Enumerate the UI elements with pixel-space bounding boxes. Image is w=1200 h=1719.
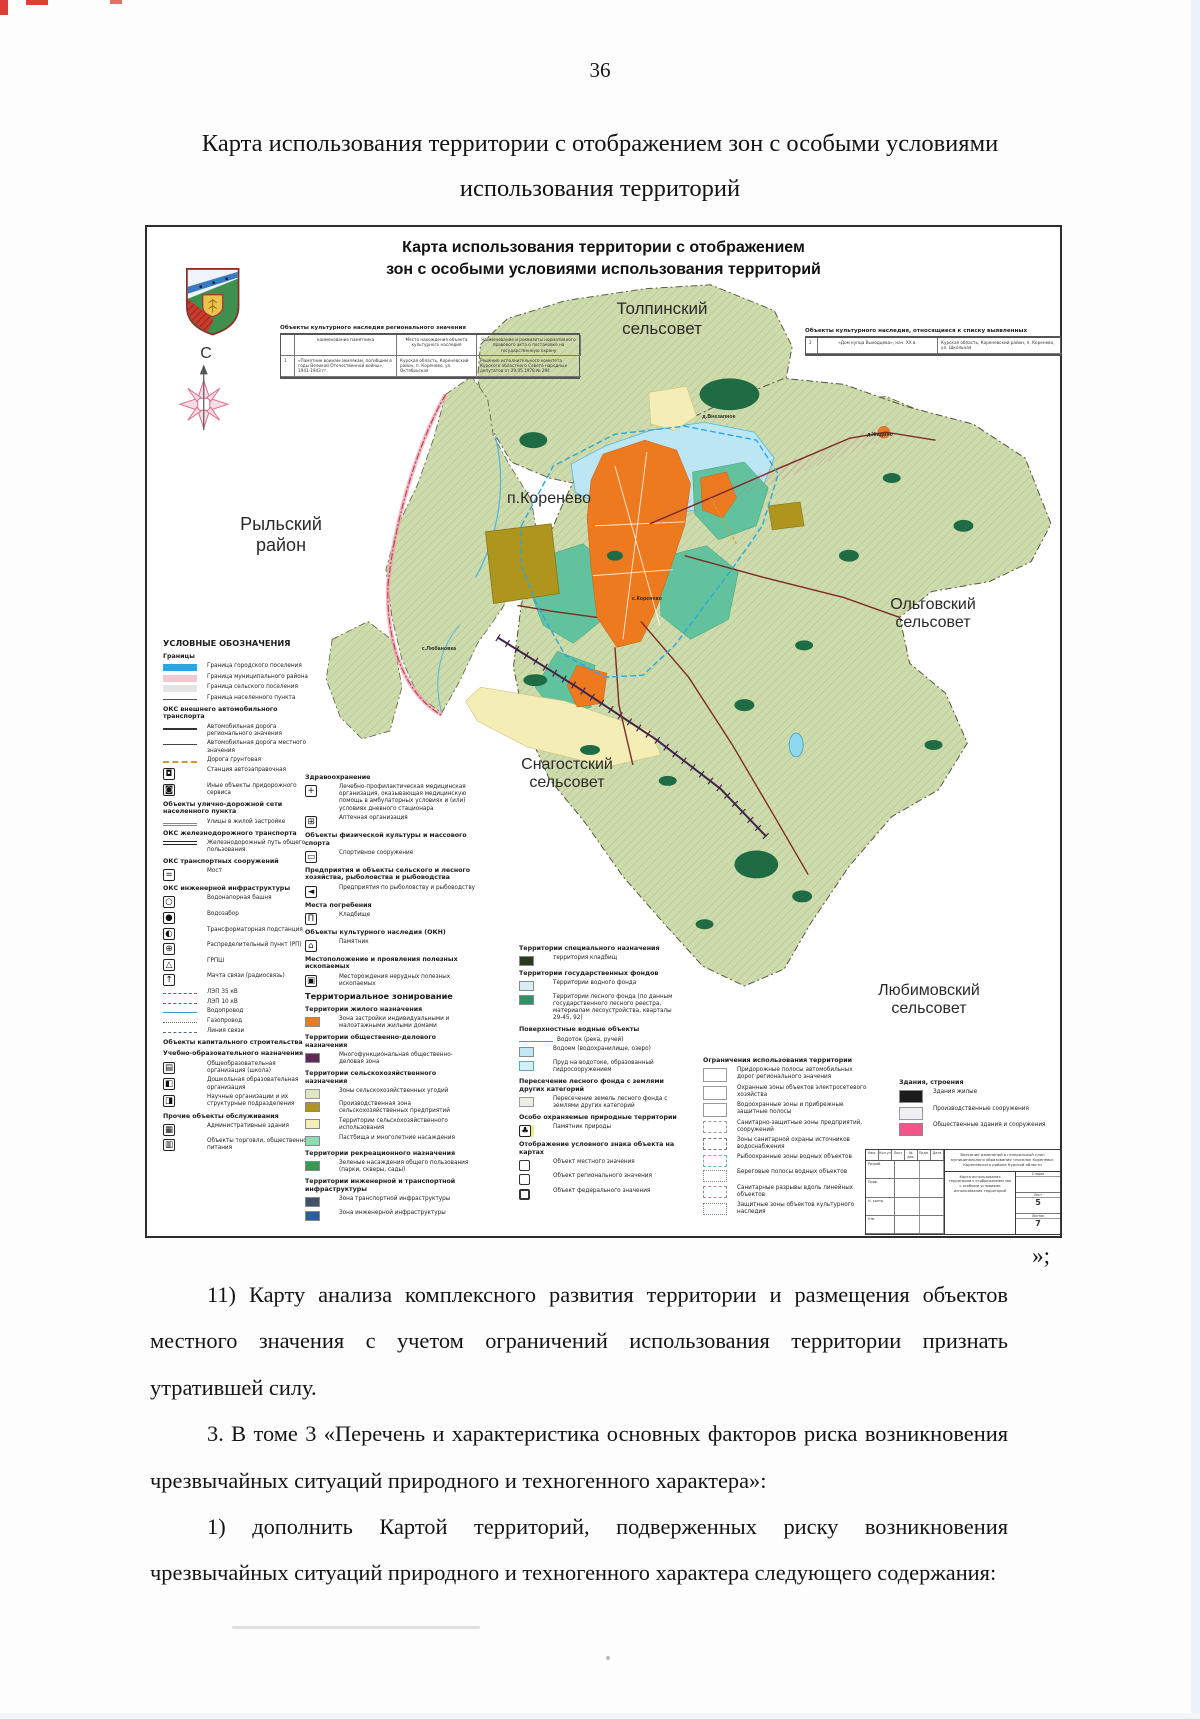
legend-item: ▭ Спортивное сооружение [305, 850, 477, 863]
legend-swatch: ◧ [163, 1078, 175, 1090]
legend-swatch [703, 1103, 727, 1117]
legend-item-label: Зона транспортной инфраструктуры [339, 1196, 450, 1203]
table-cell: Курская область, Кореневский район, п. К… [397, 356, 477, 377]
legend-item-label: Памятник природы [553, 1124, 611, 1131]
legend-item: Объекты улично-дорожной сети населенного… [163, 801, 315, 816]
legend-swatch [899, 1123, 923, 1136]
legend-item: Пастбища и многолетние насаждения [305, 1135, 477, 1146]
scan-edge-artifact [0, 1713, 1200, 1719]
legend-item-label: Дорога грунтовая [207, 757, 261, 764]
legend-item: Предприятия и объекты сельского и лесног… [305, 867, 477, 882]
legend-item-label: Рыбоохранные зоны водных объектов [737, 1154, 852, 1161]
legend-item-label: Пруд на водотоке, образованный гидросоор… [553, 1060, 681, 1074]
legend-item: Придорожные полосы автомобильных дорог р… [703, 1067, 871, 1082]
legend-item: ◧ Дошкольная образовательная организация [163, 1077, 315, 1091]
legend-item-label: ГРПШ [207, 958, 224, 965]
legend-item-label: Зона застройки индивидуальными и малоэта… [339, 1016, 477, 1030]
legend-item-label: Водопровод [207, 1008, 243, 1015]
legend-item-label: Территории сельскохозяйственного использ… [339, 1118, 477, 1132]
legend-item-label: Мост [207, 868, 222, 875]
legend-item-label: Береговые полосы водных объектов [737, 1169, 847, 1176]
legend-item: Защитные зоны объектов культурного насле… [703, 1202, 871, 1216]
paragraph-3: 3. В томе 3 «Перечень и характеристика о… [150, 1411, 1008, 1504]
legend-item: Территории лесного фонда (по данным госу… [519, 994, 681, 1023]
legend-item: Местоположение и проявления полезных иск… [305, 956, 477, 971]
legend-swatch [899, 1107, 923, 1120]
legend-item: Железнодорожный путь общего пользования [163, 840, 315, 854]
legend-item: Зона застройки индивидуальными и малоэта… [305, 1016, 477, 1030]
legend-item: Территории сельскохозяйственного назначе… [305, 1070, 477, 1085]
legend-item: Поверхностные водные объекты [519, 1026, 681, 1034]
legend-item: Пруд на водотоке, образованный гидросоор… [519, 1060, 681, 1074]
legend-item-label: Санитарные разрывы вдоль линейных объект… [737, 1185, 871, 1199]
paragraph-1: 1) дополнить Картой территорий, подверже… [150, 1504, 1008, 1597]
legend-item-label: Граница городского поселения [207, 663, 302, 670]
legend-swatch [305, 1161, 320, 1171]
legend-item: Санитарные разрывы вдоль линейных объект… [703, 1185, 871, 1199]
legend-item: Объекты физической культуры и массового … [305, 832, 477, 847]
legend-item: Зоны санитарной охраны источников водосн… [703, 1137, 871, 1151]
legend-swatch: ♣ [519, 1125, 531, 1137]
legend-swatch: ◘ [163, 768, 175, 780]
legend-swatch: = [163, 869, 175, 881]
legend-item-label: Зона инженерной инфраструктуры [339, 1210, 446, 1217]
legend-swatch [305, 1102, 320, 1112]
stamp-role-label: Утв. [866, 1216, 895, 1233]
legend-item: Пересечение земель лесного фонда с земля… [519, 1096, 681, 1110]
legend-item: ОКС внешнего автомобильного транспорта [163, 706, 315, 721]
table-cell [281, 335, 295, 356]
legend-item-label: Объекты торговли, общественного питания [207, 1138, 315, 1152]
legend-item-label: Водоем (водохранилище, озеро) [553, 1046, 651, 1053]
legend-item: ⊕ Распределительный пункт (РП) [163, 942, 315, 955]
legend-item: ⌂ Памятник [305, 939, 477, 952]
page-number: 36 [0, 58, 1200, 83]
legend-swatch [703, 1170, 727, 1182]
compass-rose-icon [180, 364, 228, 430]
legend-item: Граница сельского поселения [163, 684, 315, 692]
legend-item-label: Водоохранные зоны и прибрежные защитные … [737, 1102, 871, 1116]
legend-item-label: Объект местного значения [553, 1159, 635, 1166]
place-label: Ольговский сельсовет [890, 596, 976, 633]
legend-swatch [163, 1032, 197, 1033]
legend-item: Береговые полосы водных объектов [703, 1169, 871, 1182]
legend-swatch: ⊞ [305, 816, 317, 828]
legend-swatch [519, 995, 534, 1005]
legend-item-label: Здания жилые [933, 1089, 977, 1096]
legend-item-label: Автомобильная дорога местного значения [207, 740, 315, 754]
legend-item: ОКС транспортных сооружений [163, 858, 315, 866]
legend-item: Отображение условного знака объекта на к… [519, 1141, 681, 1156]
legend-item: Газопровод [163, 1018, 315, 1025]
legend-item-label: Спортивное сооружение [339, 850, 413, 857]
legend-item-label: Граница муниципального района [207, 674, 308, 681]
legend-item: Территории сельскохозяйственного использ… [305, 1118, 477, 1132]
legend-swatch [163, 675, 197, 682]
stamp-role-label: Разраб. [866, 1161, 895, 1178]
legend-swatch [305, 1119, 320, 1129]
legend-item: Территории инженерной и транспортной инф… [305, 1178, 477, 1193]
legend-item: Линия связи [163, 1028, 315, 1035]
place-label: д.Жадино [867, 433, 893, 439]
legend-swatch [163, 841, 197, 845]
scan-mark-artifact [26, 0, 48, 5]
legend-swatch [163, 728, 197, 730]
legend-swatch [519, 1047, 534, 1057]
legend-item-label: Трансформаторная подстанция [207, 927, 303, 934]
legend-item: ОКС инженерной инфраструктуры [163, 885, 315, 893]
legend-column-1: УСЛОВНЫЕ ОБОЗНАЧЕНИЯ Границы Граница гор… [163, 635, 315, 1155]
legend-swatch: ● [163, 912, 175, 924]
legend-item: ◘ Станция автозаправочная [163, 767, 315, 780]
legend-swatch: ⌂ [305, 940, 317, 952]
table-header: Наименование и реквизиты нормативного пр… [477, 335, 581, 356]
legend-item: Водопровод [163, 1008, 315, 1015]
legend-item: ◄ Предприятия по рыболовству и рыбоводст… [305, 885, 477, 898]
legend-item: Автомобильная дорога регионального значе… [163, 724, 315, 738]
legend-item: ▦ Административные здания [163, 1123, 315, 1136]
legend-item: + Лечебно-профилактическая медицинская о… [305, 784, 477, 813]
legend-item: Объект местного значения [519, 1159, 681, 1171]
legend-item: ↑ Мачта связи (радиосвязь) [163, 973, 315, 986]
legend-swatch [163, 1022, 197, 1023]
legend-swatch: ▦ [163, 1124, 175, 1136]
legend-item: Объект федерального значения [519, 1188, 681, 1200]
legend-item: Объект регионального значения [519, 1173, 681, 1185]
legend-item: Границы [163, 653, 315, 661]
legend-swatch [703, 1086, 727, 1100]
legend-swatch: △ [163, 959, 175, 971]
stamp-sheets-cell: Листов7 [1016, 1214, 1060, 1234]
document-title: Карта использования территории с отображ… [150, 122, 1050, 211]
stamp-document-name: Карта использования территории с отображ… [945, 1172, 1016, 1234]
legend-swatch: ▥ [163, 1139, 175, 1151]
legend-column-2: Здравоохранение + Лечебно-профилактическ… [305, 770, 477, 1223]
stamp-row: Н. контр. [866, 1198, 944, 1216]
legend-item: Общественные здания и сооружения [899, 1122, 1059, 1136]
table-header: наименование памятника [295, 335, 397, 356]
legend-swatch [519, 1061, 534, 1071]
legend-swatch: ◐ [163, 928, 175, 940]
legend-item: Ограничения использования территории [703, 1057, 871, 1065]
legend-swatch [519, 1189, 530, 1200]
legend-item: Зона инженерной инфраструктуры [305, 1210, 477, 1221]
stamp-header-cell: Дата [931, 1150, 944, 1160]
compass-north-letter: С [191, 345, 221, 363]
legend-swatch [703, 1068, 727, 1082]
legend-item-label: Лечебно-профилактическая медицинская орг… [339, 784, 477, 813]
legend-item: ЛЭП 35 кВ [163, 989, 315, 996]
legend-item: ЛЭП 10 кВ [163, 999, 315, 1006]
legend-item-label: Мачта связи (радиосвязь) [207, 973, 285, 980]
scan-mark-artifact [0, 0, 8, 15]
legend-item-label: Санитарно-защитные зоны предприятий, соо… [737, 1120, 871, 1134]
legend-swatch [305, 1053, 320, 1063]
legend-item-label: Общественные здания и сооружения [933, 1122, 1045, 1129]
table-cell: Решение исполнительного комитета Курског… [477, 356, 581, 377]
legend-item-label: Аптечная организация [339, 815, 408, 822]
legend-item: Территории рекреационного назначения [305, 1150, 477, 1158]
legend-swatch [163, 699, 197, 700]
legend-item-label: Газопровод [207, 1018, 242, 1025]
legend-swatch: ◄ [305, 886, 317, 898]
legend-swatch: ◨ [163, 1095, 175, 1107]
scan-smudge-artifact [232, 1626, 480, 1629]
legend-item-label: Водонапорная башня [207, 895, 272, 902]
legend-item-label: Защитные зоны объектов культурного насле… [737, 1202, 871, 1216]
legend-item: Территориальное зонирование [305, 992, 477, 1002]
place-label: Снагостский сельсовет [521, 756, 613, 793]
stamp-header-cell: Кол.уч [879, 1150, 892, 1160]
legend-item-label: Кладбище [339, 912, 370, 919]
legend-item-label: Месторождения нерудных полезных ископаем… [339, 974, 477, 988]
legend-swatch [519, 1041, 553, 1042]
legend-item: = Мост [163, 868, 315, 881]
legend-item: Охранные зоны объектов электросетевого х… [703, 1085, 871, 1100]
legend-swatch: ⊕ [163, 943, 175, 955]
legend-item: Производственная зона сельскохозяйственн… [305, 1101, 477, 1115]
map-title: Карта использования территории с отображ… [147, 237, 1060, 280]
map-figure: Карта использования территории с отображ… [145, 225, 1062, 1238]
legend-item-label: Административные здания [207, 1123, 289, 1130]
legend-item: Граница муниципального района [163, 674, 315, 682]
legend-item-label: Распределительный пункт (РП) [207, 942, 302, 949]
legend-item-label: Иные объекты придорожного сервиса [207, 783, 315, 797]
legend-item: ◙ Иные объекты придорожного сервиса [163, 783, 315, 797]
legend-swatch [163, 744, 197, 745]
legend-item-label: Объект федерального значения [553, 1188, 650, 1195]
table-cell: 1 [281, 356, 295, 377]
legend-item: Территории водного фонда [519, 980, 681, 991]
legend-item-label: ЛЭП 10 кВ [207, 999, 238, 1006]
legend-swatch [305, 1089, 320, 1099]
legend-swatch: ▣ [305, 975, 317, 987]
legend-swatch [163, 823, 197, 826]
legend-swatch [519, 981, 534, 991]
place-label: Любимовский сельсовет [878, 982, 980, 1019]
legend-item-label: Зеленые насаждения общего пользования (п… [339, 1160, 477, 1174]
legend-item-label: Производственные сооружения [933, 1106, 1029, 1113]
legend-item-label: Зоны сельскохозяйственных угодий [339, 1088, 448, 1095]
table-header: Место нахождения объекта культурного нас… [397, 335, 477, 356]
legend-item: Производственные сооружения [899, 1106, 1059, 1120]
legend-item-label: Научные организации и их структурные под… [207, 1094, 315, 1108]
legend-item: Автомобильная дорога местного значения [163, 740, 315, 754]
place-label: Рыльский район [240, 514, 322, 555]
legend-item: ▣ Месторождения нерудных полезных ископа… [305, 974, 477, 988]
legend-item: Территории жилого назначения [305, 1006, 477, 1014]
legend-item: ♣ Памятник природы [519, 1124, 681, 1137]
legend-item: УСЛОВНЫЕ ОБОЗНАЧЕНИЯ [163, 639, 315, 649]
legend-item: территория кладбищ [519, 955, 681, 966]
legend-swatch [163, 1003, 197, 1004]
legend-item: Учебно-образовательного назначения [163, 1050, 315, 1058]
legend-swatch: + [305, 785, 317, 797]
legend-item: Зоны сельскохозяйственных угодий [305, 1088, 477, 1099]
stamp-header-cell: № док. [905, 1150, 918, 1160]
legend-item: Граница населенного пункта [163, 695, 315, 702]
legend-column-4: Ограничения использования территории При… [703, 1053, 871, 1218]
stamp-header-cell: Подп. [918, 1150, 931, 1160]
legend-item: Объекты капитального строительства [163, 1039, 315, 1047]
stamp-row: Утв. [866, 1216, 944, 1234]
legend-swatch [703, 1186, 727, 1198]
legend-item-label: Пастбища и многолетние насаждения [339, 1135, 455, 1142]
legend-swatch: Π [305, 913, 317, 925]
legend-item: Здания жилые [899, 1089, 1059, 1103]
legend-item: Многофункциональная общественно-деловая … [305, 1052, 477, 1066]
paragraph-11: 11) Карту анализа комплексного развития … [150, 1272, 1008, 1411]
legend-item-label: Пересечение земель лесного фонда с земля… [553, 1096, 681, 1110]
stamp-row: Пров. [866, 1179, 944, 1197]
legend-swatch: ◙ [163, 784, 175, 796]
legend-swatch [703, 1138, 727, 1150]
legend-swatch [163, 664, 197, 671]
table-cell: «Памятник воинам-землякам, погибшим в го… [295, 356, 397, 377]
legend-item-label: Дошкольная образовательная организация [207, 1077, 315, 1091]
legend-item: Улицы в жилой застройке [163, 819, 315, 826]
legend-item-label: Многофункциональная общественно-деловая … [339, 1052, 477, 1066]
place-label: с.Коренево [632, 597, 662, 603]
legend-item: Рыбоохранные зоны водных объектов [703, 1154, 871, 1167]
stamp-header-cell: Изм. [866, 1150, 879, 1160]
legend-swatch [519, 1160, 530, 1171]
legend-item: Санитарно-защитные зоны предприятий, соо… [703, 1120, 871, 1134]
scan-dot-artifact [606, 1656, 610, 1660]
heritage-table-detected: Объекты культурного наследия, относящиес… [805, 328, 1061, 356]
legend-item: Здравоохранение [305, 774, 477, 782]
legend-column-5: Здания, строения Здания жилые Производст… [899, 1075, 1059, 1139]
heritage-table-regional: Объекты культурного наследия регионально… [280, 325, 580, 379]
stamp-role-label: Н. контр. [866, 1198, 895, 1215]
legend-item-label: Станция автозаправочная [207, 767, 286, 774]
legend-swatch [163, 1012, 197, 1013]
legend-swatch [519, 956, 534, 966]
legend-swatch [305, 1136, 320, 1146]
legend-swatch: ▤ [163, 1062, 175, 1074]
legend-item: ОКС железнодорожного транспорта [163, 830, 315, 838]
legend-item: ◐ Трансформаторная подстанция [163, 927, 315, 940]
legend-swatch [519, 1097, 534, 1107]
legend-item: ○ Водонапорная башня [163, 895, 315, 908]
legend-item-label: территория кладбищ [553, 955, 617, 962]
legend-item-label: Охранные зоны объектов электросетевого х… [737, 1085, 871, 1099]
legend-item-label: Граница сельского поселения [207, 684, 298, 691]
closing-quote-mark: »; [150, 1243, 1050, 1269]
legend-item: Территории государственных фондов [519, 970, 681, 978]
legend-item: Водоток (река, ручей) [519, 1037, 681, 1044]
legend-item: ● Водозабор [163, 911, 315, 924]
legend-item: Водоохранные зоны и прибрежные защитные … [703, 1102, 871, 1117]
legend-item-label: Территории водного фонда [553, 980, 636, 987]
legend-item: Здания, строения [899, 1079, 1059, 1087]
legend-column-3: Территории специального назначения терри… [519, 941, 681, 1203]
legend-item: Особо охраняемые природные территории [519, 1114, 681, 1122]
legend-swatch [305, 1017, 320, 1027]
table-cell: «Дом купца Выходцева», нач. XX в. [818, 338, 938, 354]
legend-item-label: Зоны санитарной охраны источников водосн… [737, 1137, 871, 1151]
legend-item-label: Производственная зона сельскохозяйственн… [339, 1101, 477, 1115]
scan-mark-artifact [110, 0, 122, 4]
legend-item-label: Общеобразовательная организация (школа) [207, 1061, 315, 1075]
legend-item-label: Предприятия по рыболовству и рыбоводству [339, 885, 475, 892]
legend-item: Зеленые насаждения общего пользования (п… [305, 1160, 477, 1174]
table-cell: 2 [806, 338, 818, 354]
legend-item-label: Территории лесного фонда (по данным госу… [553, 994, 681, 1023]
legend-item-label: Объект регионального значения [553, 1173, 652, 1180]
stamp-sheet-cell: Лист5 [1016, 1193, 1060, 1214]
legend-item-label: ЛЭП 35 кВ [207, 989, 238, 996]
legend-item-label: Водоток (река, ручей) [557, 1037, 623, 1044]
place-label: д.Внезапное [702, 415, 735, 421]
legend-item: Пересечение лесного фонда с землями друг… [519, 1078, 681, 1093]
legend-item-label: Памятник [339, 939, 369, 946]
document-page: 36 Карта использования территории с отоб… [0, 0, 1200, 1719]
legend-item-label: Улицы в жилой застройке [207, 819, 285, 826]
legend-swatch [519, 1174, 530, 1185]
legend-item: Дорога грунтовая [163, 757, 315, 764]
legend-swatch: ○ [163, 896, 175, 908]
legend-swatch: ▭ [305, 851, 317, 863]
legend-item-label: Водозабор [207, 911, 239, 918]
stamp-row: Разраб. [866, 1161, 944, 1179]
legend-item: ◨ Научные организации и их структурные п… [163, 1094, 315, 1108]
legend-item: Прочие объекты обслуживания [163, 1113, 315, 1121]
stamp-project-title: Внесение изменений в генеральный план му… [945, 1150, 1060, 1172]
legend-item: Водоем (водохранилище, озеро) [519, 1046, 681, 1057]
legend-swatch [703, 1121, 727, 1133]
legend-item: ⊞ Аптечная организация [305, 815, 477, 828]
legend-swatch [163, 993, 197, 994]
legend-item: Зона транспортной инфраструктуры [305, 1196, 477, 1207]
legend-item: Территории общественно-делового назначен… [305, 1034, 477, 1049]
legend-item-label: Придорожные полосы автомобильных дорог р… [737, 1067, 871, 1081]
legend-item: △ ГРПШ [163, 958, 315, 971]
legend-item-label: Железнодорожный путь общего пользования [207, 840, 315, 854]
table-cell: Курская область, Кореневский район, п. К… [938, 338, 1062, 354]
legend-item: Территории специального назначения [519, 945, 681, 953]
title-block-stamp: Изм.Кол.учЛист№ док.Подп.Дата Разраб. Пр… [865, 1149, 1061, 1235]
legend-item: Места погребения [305, 902, 477, 910]
scan-edge-artifact [1191, 0, 1200, 1719]
legend-swatch [899, 1090, 923, 1103]
legend-swatch: ↑ [163, 974, 175, 986]
legend-item-label: Граница населенного пункта [207, 695, 295, 702]
legend-swatch [703, 1155, 727, 1167]
legend-swatch [703, 1203, 727, 1215]
legend-item: Граница городского поселения [163, 663, 315, 671]
legend-swatch [305, 1211, 320, 1221]
stamp-role-label: Пров. [866, 1179, 895, 1196]
stamp-stage-cell: Стадия [1016, 1172, 1060, 1193]
legend-swatch [163, 761, 197, 763]
place-label: с.Любановка [422, 647, 456, 653]
body-text: 11) Карту анализа комплексного развития … [150, 1272, 1008, 1597]
legend-item-label: Автомобильная дорога регионального значе… [207, 724, 315, 738]
legend-item: Объекты культурного наследия (ОКН) [305, 929, 477, 937]
legend-swatch [163, 685, 197, 692]
stamp-header-cell: Лист [892, 1150, 905, 1160]
place-label: Толпинский сельсовет [616, 299, 707, 338]
legend-swatch [305, 1197, 320, 1207]
legend-item: ▥ Объекты торговли, общественного питани… [163, 1138, 315, 1152]
place-label: п.Коренево [507, 490, 591, 508]
legend-item: ▤ Общеобразовательная организация (школа… [163, 1061, 315, 1075]
legend-item: Π Кладбище [305, 912, 477, 925]
legend-item-label: Линия связи [207, 1028, 244, 1035]
